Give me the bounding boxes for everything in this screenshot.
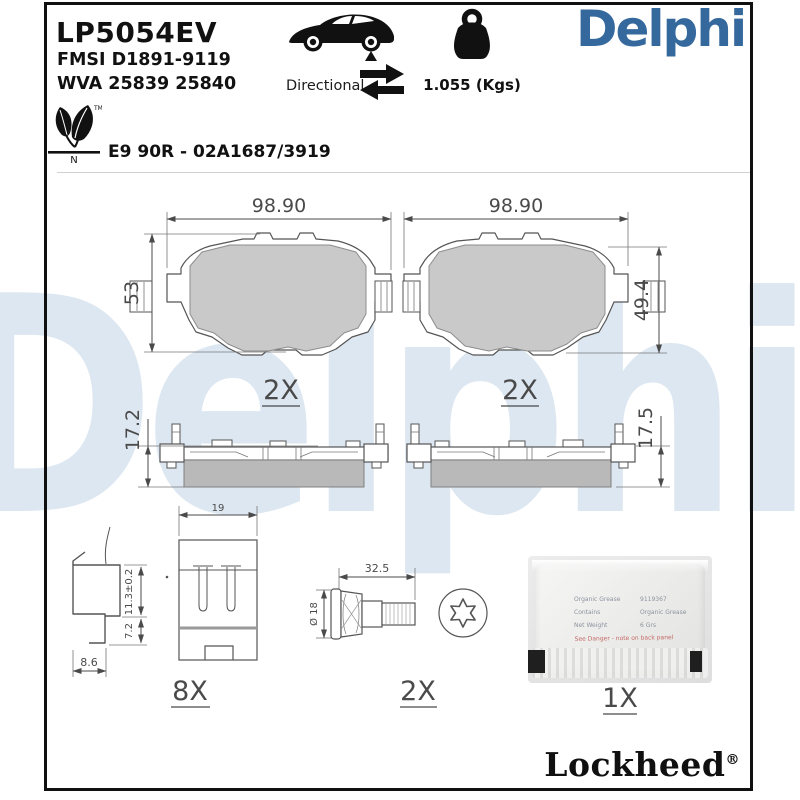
pad-side-right-view: 17.5: [407, 407, 670, 487]
dim-bolt-length: 32.5: [365, 562, 390, 575]
part-number: LP5054EV: [56, 16, 217, 49]
weight-icon: [444, 8, 500, 64]
bolt-end-view: [439, 589, 487, 637]
pad-front-left-view: 98.90 53 2X: [121, 195, 392, 406]
lockheed-logo: Lockheed®: [544, 745, 740, 784]
dim-clip-height-upper: 11.3±0.2: [124, 569, 135, 616]
dim-pad-right-width: 98.90: [489, 195, 543, 217]
pad-location-marker: [365, 51, 377, 61]
qty-sachet: 1X: [602, 683, 638, 714]
dim-pad-right-height: 49.4: [631, 279, 653, 321]
pad-side-left-view: 17.2: [122, 409, 388, 487]
header-divider: [57, 172, 750, 173]
directional-label: Directional: [286, 78, 364, 94]
dim-side-right-thickness: 17.5: [635, 407, 657, 449]
technical-drawing: 98.90 53 2X 98.90 49.4 2X: [0, 0, 800, 800]
eco-leaf-mark: TM N: [48, 101, 102, 165]
retainer-clip-profile: 11.3±0.2 7.2 8.6: [73, 527, 147, 677]
qty-shim: 8X: [172, 676, 208, 707]
pad-front-right-view: 98.90 49.4 2X: [403, 195, 667, 406]
qty-pad-right: 2X: [502, 375, 538, 406]
registered-mark: ®: [726, 752, 741, 768]
qty-pad-left: 2X: [263, 375, 299, 406]
weight-value: 1.055 (Kgs): [412, 76, 532, 94]
fmsi-reference: FMSI D1891-9119: [57, 50, 231, 70]
car-position-icon: [286, 6, 396, 64]
approval-number: E9 90R - 02A1687/3919: [108, 142, 331, 162]
eco-n-letter: N: [70, 155, 77, 165]
dim-bolt-diameter: Ø 18: [308, 602, 320, 626]
dim-pad-left-height: 53: [121, 281, 143, 305]
eco-tm-mark: TM: [93, 105, 102, 112]
qty-bolt: 2X: [400, 676, 436, 707]
sachet-qty-group: 1X: [602, 683, 638, 714]
dim-side-left-thickness: 17.2: [122, 409, 144, 451]
spec-sheet-page: Delphi Organic Grease 9119367 Contains O…: [0, 0, 800, 800]
delphi-logo: Delphi: [576, 2, 745, 57]
dim-clip-height-lower: 7.2: [124, 623, 135, 639]
lockheed-wordmark: Lockheed: [544, 745, 725, 784]
wva-reference: WVA 25839 25840: [57, 74, 236, 94]
dim-shim-width: 19: [212, 503, 225, 514]
dim-pad-left-width: 98.90: [252, 195, 306, 217]
dim-clip-width: 8.6: [80, 656, 98, 669]
abutment-shim-view: 19 8X: [166, 503, 257, 707]
guide-bolt-view: 32.5 Ø 18 2X: [308, 562, 487, 707]
directional-arrows-icon: [358, 62, 406, 102]
